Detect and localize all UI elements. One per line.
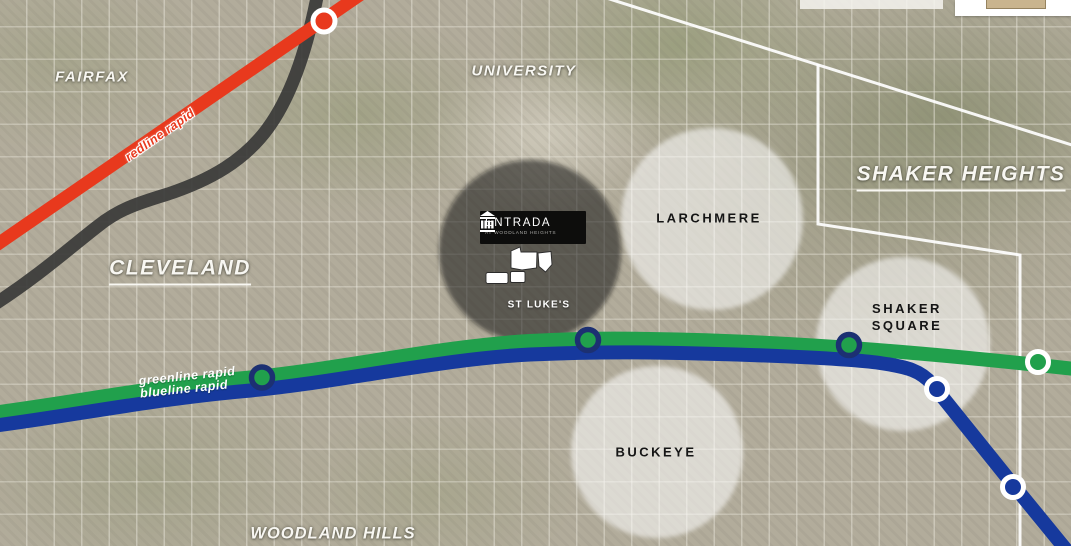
label-woodland-hills: WOODLAND HILLS	[250, 525, 415, 544]
label-fairfax: FAIRFAX	[55, 69, 129, 86]
inset-card	[955, 0, 1071, 16]
entrada-logo-subtitle: AT WOODLAND HEIGHTS	[485, 232, 556, 237]
greenline-station-marker-4	[1028, 352, 1049, 373]
shaker-heights-boundary-line-north	[600, 0, 1071, 146]
label-cleveland: CLEVELAND	[109, 257, 251, 286]
entrada-logo-title: ENTRADA	[485, 218, 556, 230]
blueline-station-marker-2	[1003, 477, 1024, 498]
greenline-station-marker-3	[839, 335, 860, 356]
label-larchmere: LARCHMERE	[656, 211, 762, 226]
transit-map: FAIRFAX UNIVERSITY CLEVELAND SHAKER HEIG…	[0, 0, 1071, 546]
entrada-building-icon	[480, 211, 495, 233]
greenline-station-marker-2	[578, 330, 599, 351]
label-buckeye: BUCKEYE	[615, 445, 696, 460]
blueline-station-marker-1	[927, 379, 948, 400]
footprint-shape-center	[511, 272, 526, 283]
label-shaker-square: SHAKER SQUARE	[855, 301, 959, 335]
spotlight-circle-entrada	[439, 160, 621, 342]
label-university: UNIVERSITY	[471, 63, 576, 80]
label-shaker-heights: SHAKER HEIGHTS	[857, 163, 1066, 192]
label-st-lukes: ST LUKE'S	[508, 300, 571, 311]
greenline-station-marker-1	[252, 367, 273, 388]
footprint-shape-west	[486, 273, 508, 284]
inset-card-image	[986, 0, 1046, 9]
redline-station-marker	[313, 10, 335, 32]
entrada-logo: ENTRADA AT WOODLAND HEIGHTS	[480, 211, 586, 244]
